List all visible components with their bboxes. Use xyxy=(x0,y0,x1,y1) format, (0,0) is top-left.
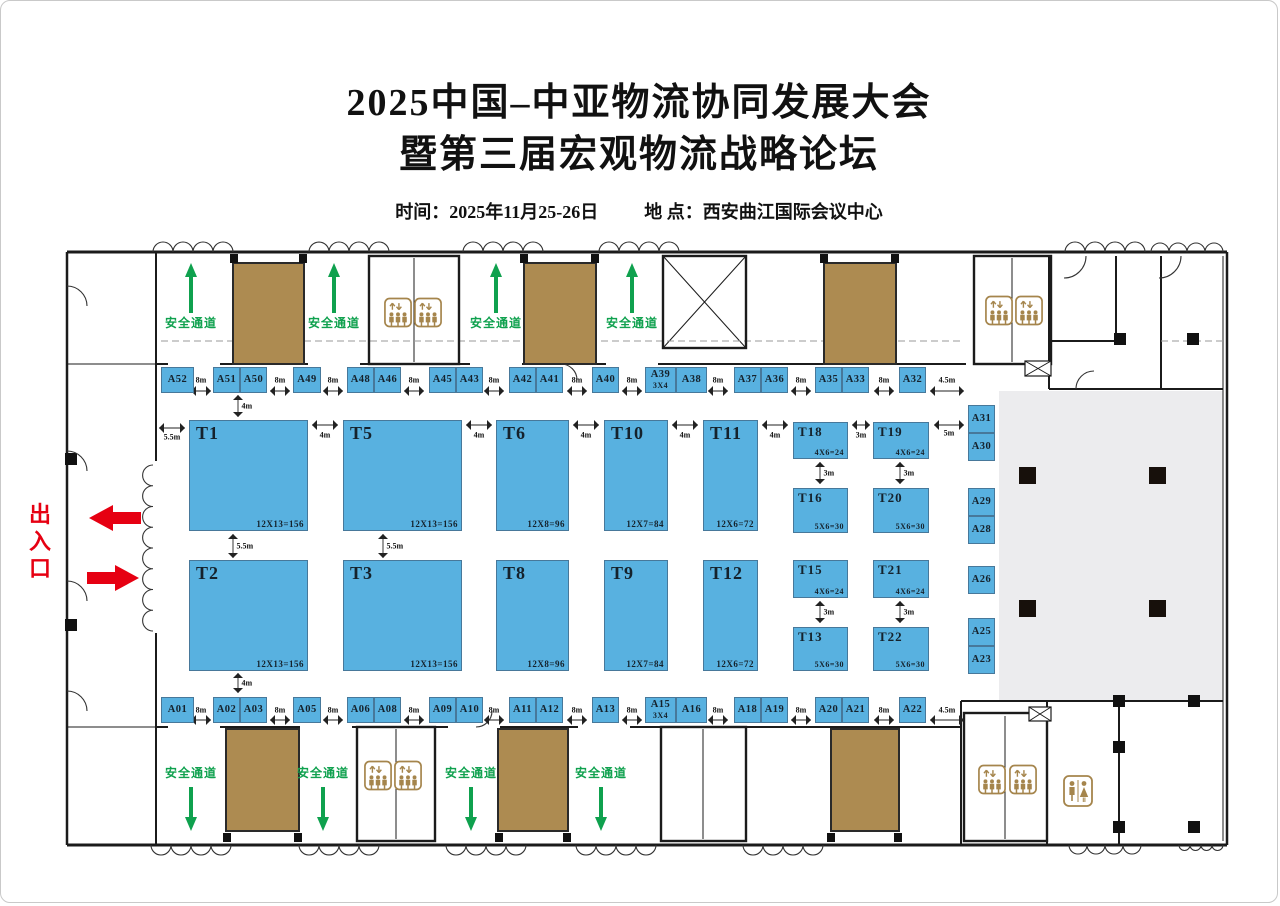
svg-text:8m: 8m xyxy=(627,376,638,385)
booth-T9: T912X7=84 xyxy=(604,560,668,671)
column-pier xyxy=(1019,467,1036,484)
door-swing xyxy=(67,581,87,601)
wall-pier xyxy=(827,833,835,842)
booth-A03: A03 xyxy=(240,697,267,723)
booth-T11: T1112X6=72 xyxy=(703,420,758,531)
entrance-arrow-left xyxy=(89,505,141,531)
booth-id: A06 xyxy=(351,705,371,716)
door-swing xyxy=(67,691,87,711)
floor-plan-page: 2025中国–中亚物流协同发展大会 暨第三届宏观物流战略论坛 时间：2025年1… xyxy=(0,0,1278,903)
booth-T15: T154X6=24 xyxy=(793,560,848,598)
booth-size: 12X13=156 xyxy=(256,659,304,669)
elevator-icon xyxy=(986,297,1012,325)
elevator-icon xyxy=(365,762,391,790)
booth-A48: A48 xyxy=(347,367,374,393)
booth-A28: A28 xyxy=(968,516,995,544)
stairwell xyxy=(226,729,299,831)
booth-A08: A08 xyxy=(374,697,401,723)
booth-id: T21 xyxy=(878,562,903,578)
door-swing xyxy=(67,286,87,306)
svg-text:8m: 8m xyxy=(572,706,583,715)
safety-arrowhead xyxy=(185,817,197,831)
svg-text:5.5m: 5.5m xyxy=(387,542,404,551)
booth-id: T10 xyxy=(611,423,644,444)
booth-A22: A22 xyxy=(899,697,926,723)
booth-id: A48 xyxy=(351,375,371,386)
safety-channel-label: 安全通道 xyxy=(165,764,217,781)
booth-id: A15 xyxy=(651,700,671,711)
booth-id: A31 xyxy=(972,414,992,425)
booth-id: A11 xyxy=(513,705,532,716)
booth-size: 5X6=30 xyxy=(896,522,925,531)
booth-id: A25 xyxy=(972,627,992,638)
booth-A33: A33 xyxy=(842,367,869,393)
booth-id: T1 xyxy=(196,423,219,444)
column-pier xyxy=(1113,821,1125,833)
booth-id: A20 xyxy=(819,705,839,716)
stairwell xyxy=(524,263,596,364)
door-swing xyxy=(1159,256,1181,278)
booth-A15: A153X4 xyxy=(645,697,676,723)
svg-text:8m: 8m xyxy=(489,376,500,385)
wall-pier xyxy=(591,254,599,263)
booth-T5: T512X13=156 xyxy=(343,420,462,531)
booth-id: A43 xyxy=(460,375,480,386)
svg-text:3m: 3m xyxy=(824,469,835,478)
safety-arrowhead xyxy=(626,263,638,277)
booth-A40: A40 xyxy=(592,367,619,393)
booth-id: A40 xyxy=(596,375,616,386)
wall-pier xyxy=(230,254,238,263)
booth-A18: A18 xyxy=(734,697,761,723)
svg-text:8m: 8m xyxy=(572,376,583,385)
booth-A21: A21 xyxy=(842,697,869,723)
svg-text:8m: 8m xyxy=(328,706,339,715)
booth-id: A49 xyxy=(297,375,317,386)
svg-text:8m: 8m xyxy=(328,376,339,385)
wall-pier xyxy=(894,833,902,842)
stairwell xyxy=(824,263,896,364)
booth-id: T20 xyxy=(878,490,903,506)
booth-A02: A02 xyxy=(213,697,240,723)
booth-A06: A06 xyxy=(347,697,374,723)
wall-pier xyxy=(223,833,231,842)
svg-text:5m: 5m xyxy=(944,429,955,438)
wall-pier xyxy=(520,254,528,263)
svg-text:4.5m: 4.5m xyxy=(939,376,956,385)
booth-T12: T1212X6=72 xyxy=(703,560,758,671)
booth-A52: A52 xyxy=(161,367,194,393)
booth-id: A42 xyxy=(513,375,533,386)
booth-id: T9 xyxy=(611,563,634,584)
safety-channel-label: 安全通道 xyxy=(445,764,497,781)
column-pier xyxy=(1187,333,1199,345)
svg-text:3m: 3m xyxy=(904,469,915,478)
booth-id: A30 xyxy=(972,442,992,453)
booth-id: T15 xyxy=(798,562,823,578)
svg-text:8m: 8m xyxy=(196,706,207,715)
booth-size: 4X6=24 xyxy=(815,448,844,457)
elevator-icon xyxy=(979,766,1005,794)
booth-id: A18 xyxy=(738,705,758,716)
booth-id: A21 xyxy=(846,705,866,716)
dimension: 4.5m xyxy=(930,706,964,721)
svg-text:3m: 3m xyxy=(824,608,835,617)
booth-id: A03 xyxy=(244,705,264,716)
booth-size: 3X4 xyxy=(653,712,668,720)
svg-text:4m: 4m xyxy=(770,431,781,440)
svg-text:5.5m: 5.5m xyxy=(164,433,181,442)
booth-id: A41 xyxy=(540,375,560,386)
booth-size: 4X6=24 xyxy=(896,587,925,596)
booth-A46: A46 xyxy=(374,367,401,393)
booth-A23: A23 xyxy=(968,646,995,674)
booth-id: A32 xyxy=(903,375,923,386)
booth-A49: A49 xyxy=(293,367,321,393)
entrance-label: 出入口 xyxy=(27,502,53,582)
booth-id: T11 xyxy=(710,423,742,444)
svg-text:4.5m: 4.5m xyxy=(939,706,956,715)
elevator-icon xyxy=(395,762,421,790)
booth-size: 3X4 xyxy=(653,382,668,390)
booth-id: A37 xyxy=(738,375,758,386)
booth-id: A23 xyxy=(972,655,992,666)
svg-text:8m: 8m xyxy=(275,376,286,385)
booth-id: A02 xyxy=(217,705,237,716)
booth-id: T2 xyxy=(196,563,219,584)
booth-id: A51 xyxy=(217,375,237,386)
booth-id: T5 xyxy=(350,423,373,444)
svg-text:8m: 8m xyxy=(409,376,420,385)
wall-pier xyxy=(294,833,302,842)
booth-A42: A42 xyxy=(509,367,536,393)
booth-T6: T612X8=96 xyxy=(496,420,569,531)
column-pier xyxy=(1188,695,1200,707)
booth-A29: A29 xyxy=(968,488,995,516)
stairwell xyxy=(233,263,304,364)
elevator-icon xyxy=(415,299,441,327)
dimension: 4.5m xyxy=(930,376,964,392)
booth-size: 12X7=84 xyxy=(626,519,664,529)
svg-text:3m: 3m xyxy=(856,431,867,440)
wall-pier xyxy=(891,254,899,263)
column-pier xyxy=(1149,600,1166,617)
svg-text:8m: 8m xyxy=(796,706,807,715)
booth-A37: A37 xyxy=(734,367,761,393)
booth-A01: A01 xyxy=(161,697,194,723)
elevator-icon xyxy=(1010,766,1036,794)
svg-text:8m: 8m xyxy=(489,706,500,715)
booth-A25: A25 xyxy=(968,618,995,646)
booth-id: A33 xyxy=(846,375,866,386)
booth-A19: A19 xyxy=(761,697,788,723)
booth-A13: A13 xyxy=(592,697,619,723)
booth-A30: A30 xyxy=(968,433,995,461)
booth-id: A08 xyxy=(378,705,398,716)
reserved-area xyxy=(999,391,1223,701)
booth-id: T18 xyxy=(798,424,823,440)
booth-id: A26 xyxy=(972,575,992,586)
booth-A43: A43 xyxy=(456,367,483,393)
floor-plan: 8m8m8m8m8m8m8m8m8m8m4.5m8m8m8m8m8m8m8m8m… xyxy=(1,1,1277,902)
booth-A39: A393X4 xyxy=(645,367,676,393)
booth-size: 12X13=156 xyxy=(410,519,458,529)
svg-text:8m: 8m xyxy=(713,376,724,385)
svg-text:5.5m: 5.5m xyxy=(237,542,254,551)
column-pier xyxy=(1114,333,1126,345)
booth-id: A12 xyxy=(540,705,560,716)
wall-pier xyxy=(299,254,307,263)
door-swing xyxy=(1076,371,1094,389)
svg-text:4m: 4m xyxy=(320,431,331,440)
booth-id: A29 xyxy=(972,497,992,508)
booth-T3: T312X13=156 xyxy=(343,560,462,671)
wall-pier xyxy=(495,833,503,842)
safety-channel-label: 安全通道 xyxy=(470,314,522,331)
column-pier xyxy=(65,453,77,465)
booth-T22: T225X6=30 xyxy=(873,627,929,671)
booth-A26: A26 xyxy=(968,566,995,594)
booth-A12: A12 xyxy=(536,697,563,723)
booth-id: T13 xyxy=(798,629,823,645)
stairwell xyxy=(831,729,899,831)
safety-arrowhead xyxy=(465,817,477,831)
svg-text:8m: 8m xyxy=(713,706,724,715)
booth-id: A36 xyxy=(765,375,785,386)
booth-id: T19 xyxy=(878,424,903,440)
svg-text:8m: 8m xyxy=(879,376,890,385)
svg-text:8m: 8m xyxy=(879,706,890,715)
booth-A10: A10 xyxy=(456,697,483,723)
booth-id: T6 xyxy=(503,423,526,444)
booth-id: A50 xyxy=(244,375,264,386)
booth-T21: T214X6=24 xyxy=(873,560,929,598)
booth-id: A52 xyxy=(168,375,188,386)
booth-A32: A32 xyxy=(899,367,926,393)
svg-text:8m: 8m xyxy=(796,376,807,385)
booth-id: A16 xyxy=(682,705,702,716)
booth-size: 5X6=30 xyxy=(815,660,844,669)
booth-A11: A11 xyxy=(509,697,536,723)
stairwell xyxy=(498,729,568,831)
booth-A16: A16 xyxy=(676,697,707,723)
elevator-icon xyxy=(385,299,411,327)
booth-id: T8 xyxy=(503,563,526,584)
safety-channel-label: 安全通道 xyxy=(308,314,360,331)
booth-id: A35 xyxy=(819,375,839,386)
safety-arrowhead xyxy=(185,263,197,277)
booth-size: 12X8=96 xyxy=(527,519,565,529)
booth-id: T3 xyxy=(350,563,373,584)
booth-id: A45 xyxy=(433,375,453,386)
booth-A41: A41 xyxy=(536,367,563,393)
column-pier xyxy=(1019,600,1036,617)
svg-text:8m: 8m xyxy=(275,706,286,715)
booth-id: A38 xyxy=(682,375,702,386)
column-pier xyxy=(1113,741,1125,753)
safety-channel-label: 安全通道 xyxy=(606,314,658,331)
booth-T13: T135X6=30 xyxy=(793,627,848,671)
svg-text:4m: 4m xyxy=(680,431,691,440)
booth-size: 5X6=30 xyxy=(896,660,925,669)
svg-text:8m: 8m xyxy=(409,706,420,715)
safety-arrowhead xyxy=(490,263,502,277)
booth-id: A28 xyxy=(972,525,992,536)
svg-text:3m: 3m xyxy=(904,608,915,617)
door-swing xyxy=(1064,256,1086,278)
booth-id: A39 xyxy=(651,370,671,381)
booth-T19: T194X6=24 xyxy=(873,422,929,459)
booth-A38: A38 xyxy=(676,367,707,393)
booth-T16: T165X6=30 xyxy=(793,488,848,533)
booth-size: 5X6=30 xyxy=(815,522,844,531)
column-pier xyxy=(1188,821,1200,833)
booth-size: 12X6=72 xyxy=(716,519,754,529)
svg-text:8m: 8m xyxy=(196,376,207,385)
booth-A20: A20 xyxy=(815,697,842,723)
booth-id: A09 xyxy=(433,705,453,716)
booth-A31: A31 xyxy=(968,405,995,433)
booth-size: 12X13=156 xyxy=(410,659,458,669)
svg-text:4m: 4m xyxy=(581,431,592,440)
svg-text:8m: 8m xyxy=(627,706,638,715)
booth-id: A05 xyxy=(297,705,317,716)
booth-A50: A50 xyxy=(240,367,267,393)
booth-size: 12X13=156 xyxy=(256,519,304,529)
toilet-icon xyxy=(1064,776,1092,806)
booth-size: 4X6=24 xyxy=(815,587,844,596)
booth-T18: T184X6=24 xyxy=(793,422,848,459)
booth-T20: T205X6=30 xyxy=(873,488,929,533)
booth-A05: A05 xyxy=(293,697,321,723)
safety-arrowhead xyxy=(595,817,607,831)
column-pier xyxy=(65,619,77,631)
booth-id: A46 xyxy=(378,375,398,386)
booth-id: A01 xyxy=(168,705,188,716)
booth-id: T22 xyxy=(878,629,903,645)
folding-door xyxy=(143,465,153,631)
booth-id: A13 xyxy=(596,705,616,716)
booth-T8: T812X8=96 xyxy=(496,560,569,671)
svg-text:4m: 4m xyxy=(242,679,253,688)
booth-A36: A36 xyxy=(761,367,788,393)
safety-arrowhead xyxy=(317,817,329,831)
safety-channel-label: 安全通道 xyxy=(297,764,349,781)
booth-size: 4X6=24 xyxy=(896,448,925,457)
booth-size: 12X6=72 xyxy=(716,659,754,669)
wall-pier xyxy=(563,833,571,842)
booth-id: A19 xyxy=(765,705,785,716)
booth-id: A22 xyxy=(903,705,923,716)
column-pier xyxy=(1149,467,1166,484)
safety-channel-label: 安全通道 xyxy=(165,314,217,331)
safety-arrowhead xyxy=(328,263,340,277)
entrance-arrow-right xyxy=(87,565,139,591)
booth-T1: T112X13=156 xyxy=(189,420,308,531)
booth-A35: A35 xyxy=(815,367,842,393)
booth-A09: A09 xyxy=(429,697,456,723)
booth-size: 12X8=96 xyxy=(527,659,565,669)
svg-text:4m: 4m xyxy=(242,402,253,411)
booth-T10: T1012X7=84 xyxy=(604,420,668,531)
elevator-icon xyxy=(1016,297,1042,325)
booth-T2: T212X13=156 xyxy=(189,560,308,671)
safety-channel-label: 安全通道 xyxy=(575,764,627,781)
column-pier xyxy=(1113,695,1125,707)
booth-A45: A45 xyxy=(429,367,456,393)
wall-pier xyxy=(820,254,828,263)
booth-id: T12 xyxy=(710,563,743,584)
svg-text:4m: 4m xyxy=(474,431,485,440)
booth-A51: A51 xyxy=(213,367,240,393)
booth-id: A10 xyxy=(460,705,480,716)
booth-size: 12X7=84 xyxy=(626,659,664,669)
booth-id: T16 xyxy=(798,490,823,506)
